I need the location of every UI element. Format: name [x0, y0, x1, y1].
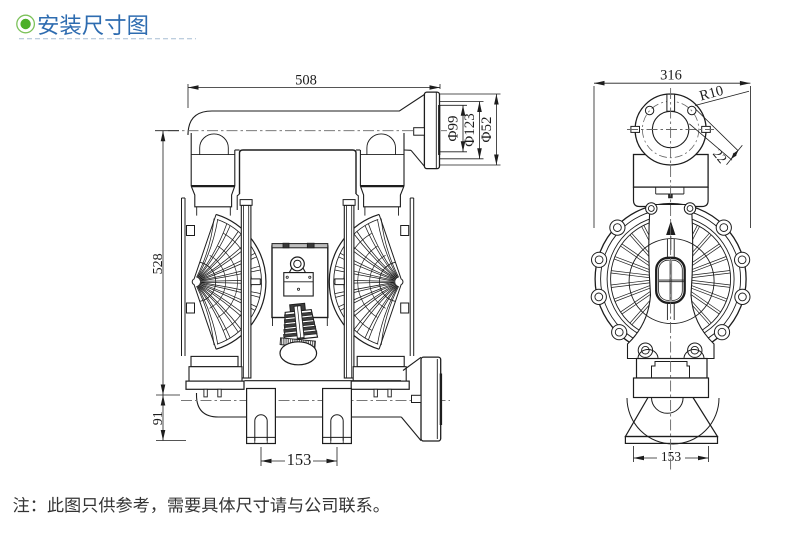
svg-text:Φ123: Φ123 — [462, 113, 478, 146]
svg-text:R10: R10 — [698, 83, 725, 105]
svg-text:508: 508 — [295, 73, 317, 89]
svg-text:153: 153 — [287, 450, 312, 469]
svg-text:153: 153 — [661, 449, 682, 464]
svg-text:Φ99: Φ99 — [446, 116, 462, 142]
svg-text:Φ52: Φ52 — [479, 117, 495, 143]
svg-text:22: 22 — [710, 146, 730, 166]
svg-text:528: 528 — [151, 253, 166, 274]
svg-text:91: 91 — [151, 411, 166, 425]
svg-text:316: 316 — [660, 68, 682, 84]
